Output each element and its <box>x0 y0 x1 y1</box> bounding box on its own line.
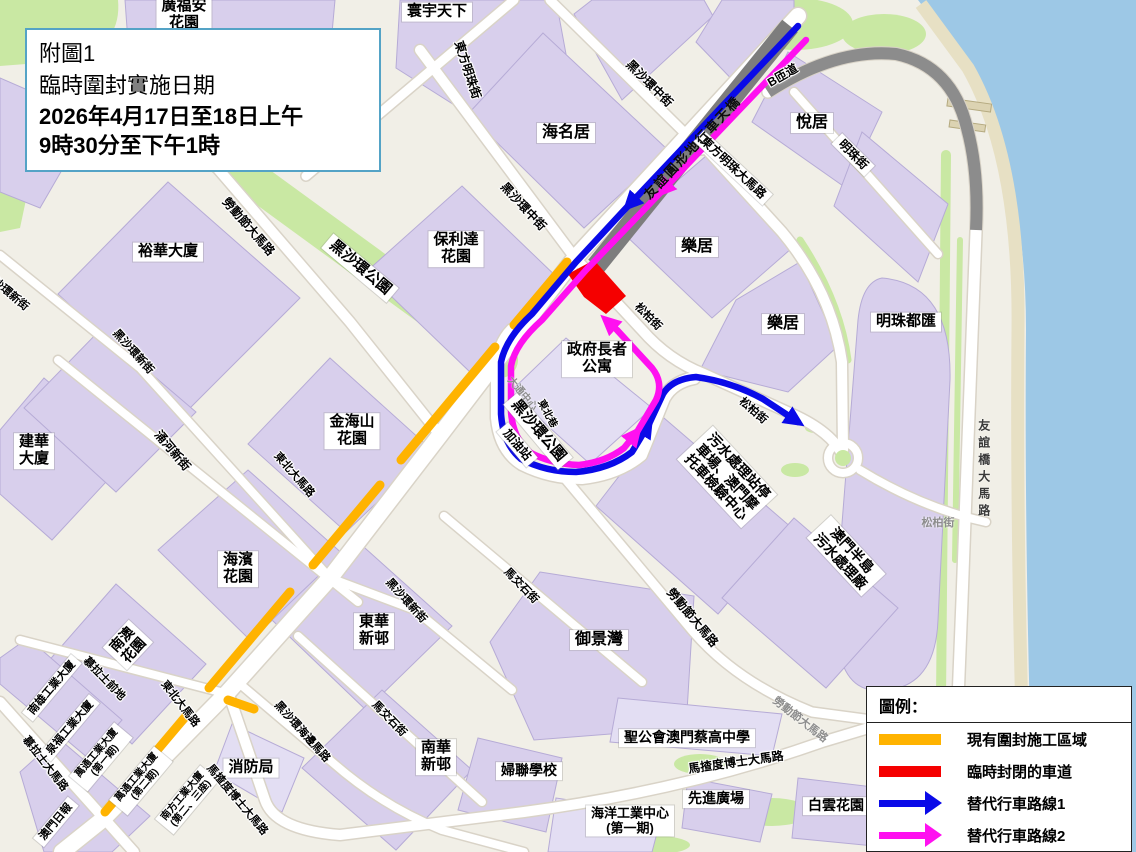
roundabout-center <box>835 450 851 466</box>
place-label: 政府長者公寓 <box>562 341 632 377</box>
place-label: 先進廣場 <box>683 790 749 808</box>
place-label: 寰宇天下 <box>402 3 472 22</box>
figure-number: 附圖1 <box>39 38 367 70</box>
legend-item-label: 現有圍封施工區域 <box>967 729 1087 750</box>
place-label: 東華新邨 <box>354 613 394 649</box>
legend-arrow-swatch <box>879 823 967 847</box>
place-label: 樂居 <box>762 314 804 334</box>
street-label: 友誼橋大馬路 <box>976 419 989 521</box>
closure-date-line1: 2026年4月17日至18日上午 <box>39 102 367 131</box>
legend-rows: 現有圍封施工區域臨時封閉的車道替代行車路線1替代行車路線2 <box>867 723 1131 851</box>
place-label: 海洋工業中心(第一期) <box>586 805 674 836</box>
legend-title: 圖例： <box>867 687 1131 723</box>
place-label: 海名居 <box>537 123 595 143</box>
place-label: 金海山花園 <box>324 413 379 449</box>
closure-date-heading: 臨時圍封實施日期 <box>39 70 367 102</box>
legend-item-label: 替代行車路線1 <box>967 793 1065 814</box>
legend-arrow-swatch <box>879 791 967 815</box>
place-label: 建華大廈 <box>14 433 54 469</box>
place-label: 樂居 <box>676 237 718 257</box>
legend-bar-swatch <box>879 766 967 777</box>
legend-item: 現有圍封施工區域 <box>867 723 1131 755</box>
closure-date-line2: 9時30分至下午1時 <box>39 131 367 160</box>
place-label: 御景灣 <box>570 630 628 650</box>
place-label: 悅居 <box>791 113 833 133</box>
title-box: 附圖1 臨時圍封實施日期 2026年4月17日至18日上午 9時30分至下午1時 <box>25 28 381 172</box>
legend-item-label: 替代行車路線2 <box>967 825 1065 846</box>
place-label: 裕華大廈 <box>133 243 203 262</box>
street-label: 松柏街 <box>922 517 955 529</box>
place-label: 聖公會澳門蔡高中學 <box>619 729 755 747</box>
place-label: 海濱花園 <box>218 551 258 587</box>
map-screenshot: 寰宇天下廣福安花園海名居悅居保利達花園樂居樂居明珠都匯政府長者公寓裕華大廈建華大… <box>0 0 1136 852</box>
legend-item: 替代行車路線2 <box>867 819 1131 851</box>
place-label: 消防局 <box>223 759 278 778</box>
legend-box: 圖例： 現有圍封施工區域臨時封閉的車道替代行車路線1替代行車路線2 <box>866 686 1132 852</box>
place-label: 明珠都匯 <box>871 313 941 332</box>
place-label: 保利達花園 <box>428 231 483 267</box>
place-label: 婦聯學校 <box>496 762 562 780</box>
legend-item: 替代行車路線1 <box>867 787 1131 819</box>
place-label: 南華新邨 <box>416 739 456 775</box>
legend-item-label: 臨時封閉的車道 <box>967 761 1072 782</box>
legend-item: 臨時封閉的車道 <box>867 755 1131 787</box>
place-label: 白雲花園 <box>803 797 869 815</box>
legend-bar-swatch <box>879 734 967 745</box>
